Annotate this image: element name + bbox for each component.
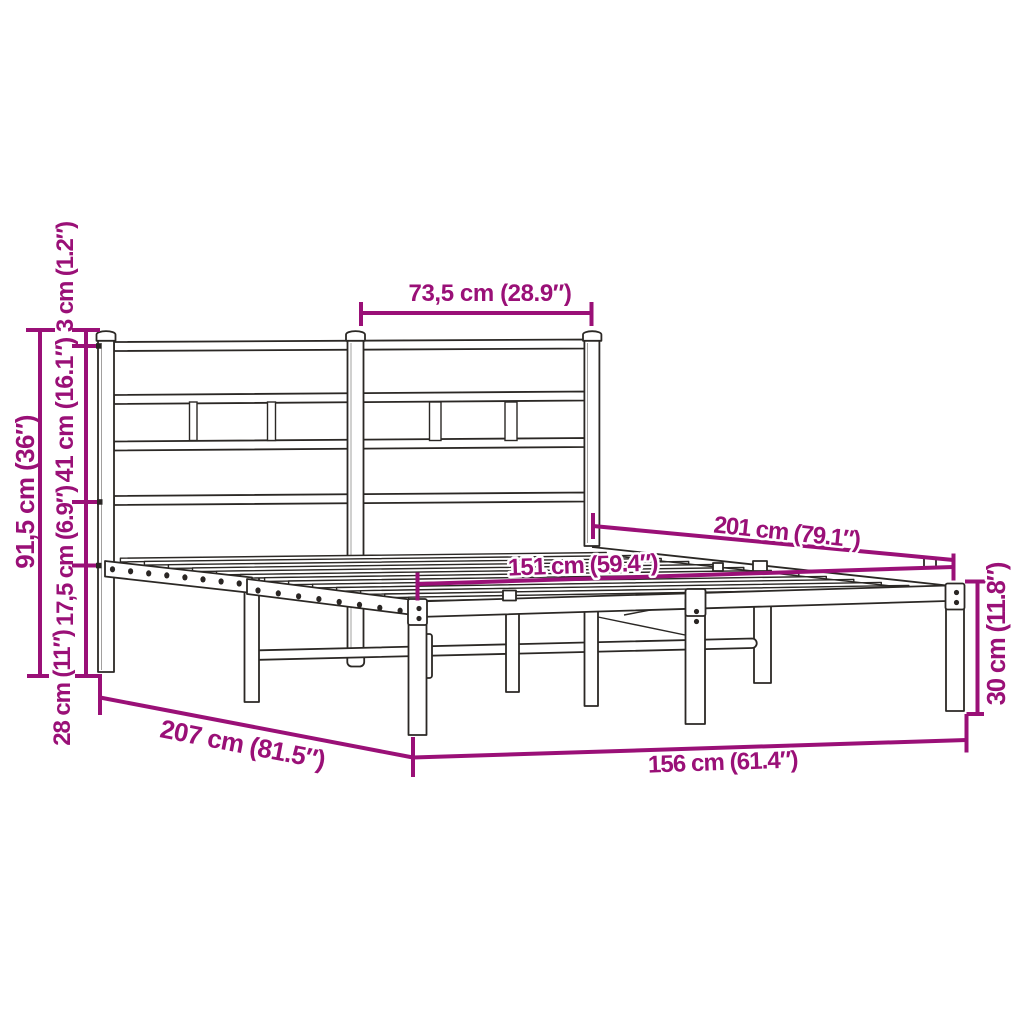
svg-text:28 cm (11″): 28 cm (11″) (49, 630, 76, 746)
svg-text:151 cm (59.4″): 151 cm (59.4″) (507, 549, 658, 581)
svg-text:73,5 cm (28.9″): 73,5 cm (28.9″) (409, 280, 572, 307)
svg-text:156 cm (61.4″): 156 cm (61.4″) (647, 746, 798, 778)
svg-text:30 cm (11.8″): 30 cm (11.8″) (983, 562, 1011, 705)
svg-text:3 cm (1.2″): 3 cm (1.2″) (52, 222, 79, 332)
svg-text:17,5 cm (6.9″): 17,5 cm (6.9″) (52, 486, 79, 626)
svg-text:91,5 cm (36″): 91,5 cm (36″) (10, 415, 40, 569)
svg-text:41 cm (16.1″): 41 cm (16.1″) (51, 337, 79, 482)
